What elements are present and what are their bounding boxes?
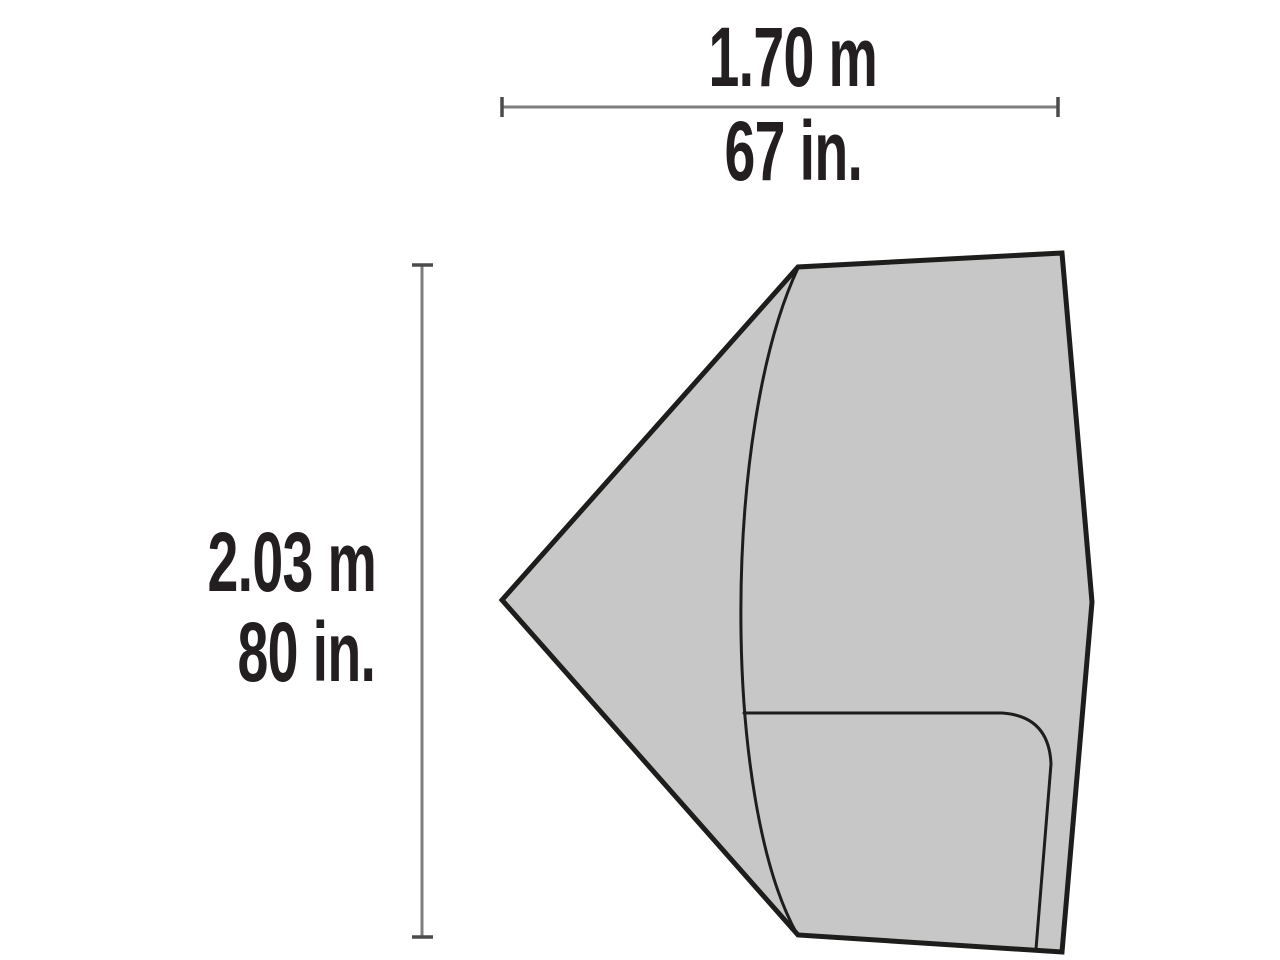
height-dimension-line [412,265,433,937]
footprint-diagram-svg [0,0,1280,960]
diagram-canvas: 1.70 m 67 in. 2.03 m 80 in. [0,0,1280,960]
tent-footprint-outline [502,253,1092,952]
width-dimension-line [502,97,1058,117]
